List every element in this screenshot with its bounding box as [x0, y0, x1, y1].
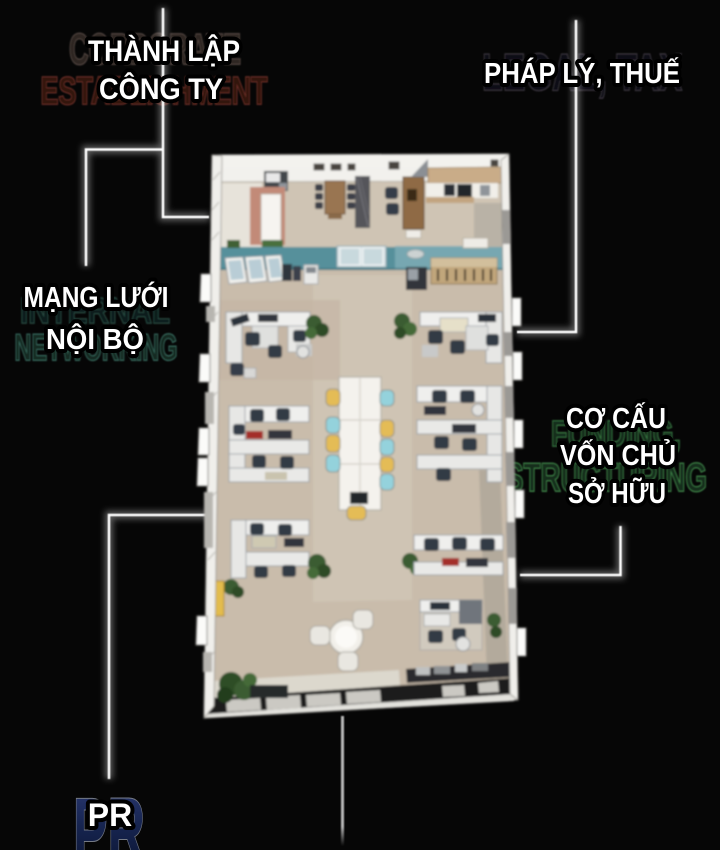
svg-text:VỐN CHỦ: VỐN CHỦ	[560, 438, 676, 472]
svg-text:PR: PR	[88, 797, 132, 833]
svg-text:CƠ CẤU: CƠ CẤU	[566, 401, 666, 435]
svg-text:SỞ HỮU: SỞ HỮU	[568, 476, 666, 510]
svg-text:NỘI BỘ: NỘI BỘ	[46, 322, 144, 356]
svg-text:THÀNH LẬP: THÀNH LẬP	[88, 34, 240, 68]
svg-text:MẠNG LƯỚI: MẠNG LƯỚI	[24, 280, 169, 314]
svg-text:PHÁP LÝ, THUẾ: PHÁP LÝ, THUẾ	[484, 56, 680, 90]
svg-text:CÔNG TY: CÔNG TY	[99, 72, 223, 106]
